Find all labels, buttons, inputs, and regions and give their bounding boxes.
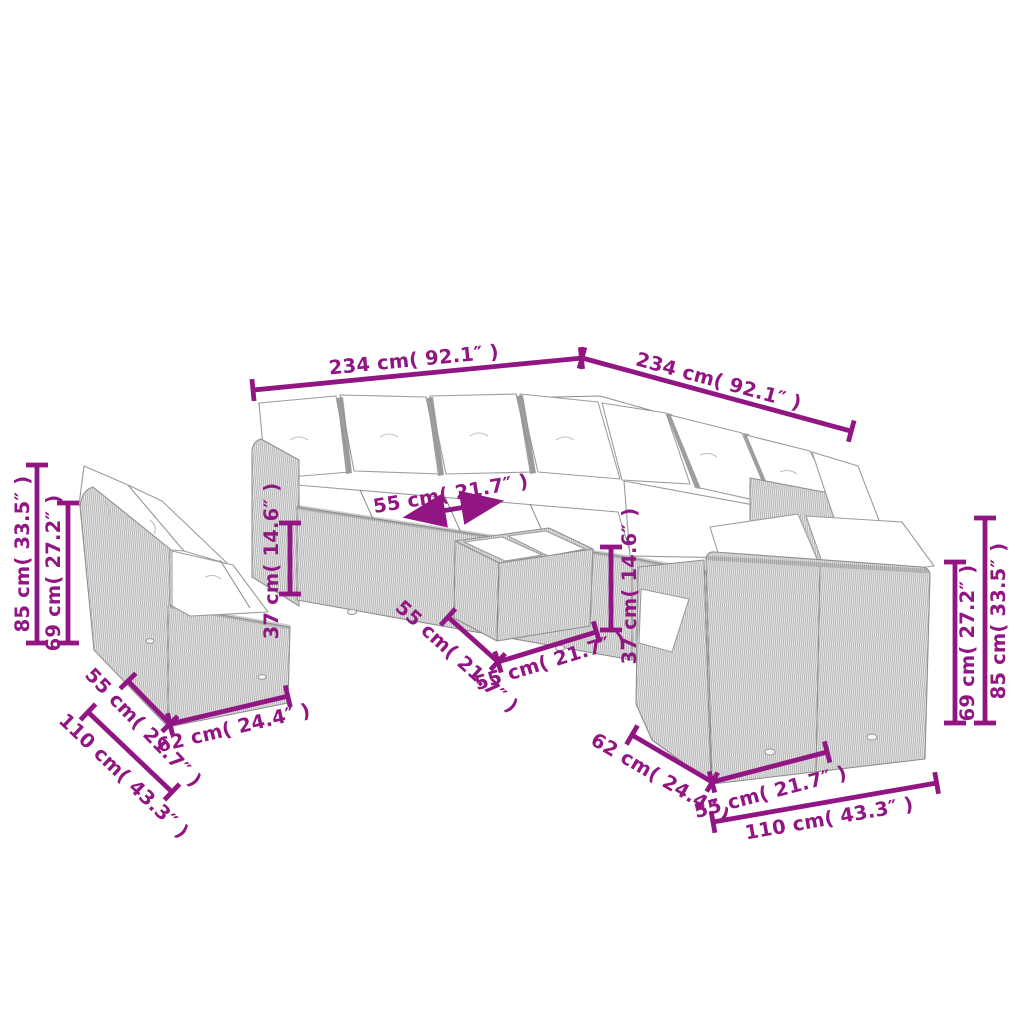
dim-left-backrest-height: 69 cm( 27.2″ ) [42,495,79,652]
dim-label-right-backrest-height: 69 cm( 27.2″ ) [956,565,979,722]
table-front-face [497,549,593,641]
product-dimension-diagram: 234 cm( 92.1″ ) 234 cm( 92.1″ ) 85 cm( 3… [0,0,1024,1024]
panel-rivet [765,749,775,755]
base-rivet [146,639,154,644]
base-rivet [258,675,266,680]
back-cushion [430,394,534,474]
dim-label-table-height: 37 cm( 14.6″ ) [618,508,641,665]
dim-label-left-overall-height: 85 cm( 33.5″ ) [11,476,34,633]
dim-top-width-left: 234 cm( 92.1″ ) [250,332,582,401]
panel-rivet [867,734,877,740]
base-rivet [348,609,357,614]
dim-label-left-backrest-height: 69 cm( 27.2″ ) [42,495,65,652]
coffee-table-drawing [454,528,593,641]
dim-label-right-overall-height: 85 cm( 33.5″ ) [987,543,1010,700]
dim-label-seat-height: 37 cm( 14.6″ ) [260,483,283,640]
diagram-canvas: 234 cm( 92.1″ ) 234 cm( 92.1″ ) 85 cm( 3… [0,0,1024,1024]
dim-right-overall-height: 85 cm( 33.5″ ) [974,518,1010,723]
dim-right-backrest-height: 69 cm( 27.2″ ) [944,562,979,723]
